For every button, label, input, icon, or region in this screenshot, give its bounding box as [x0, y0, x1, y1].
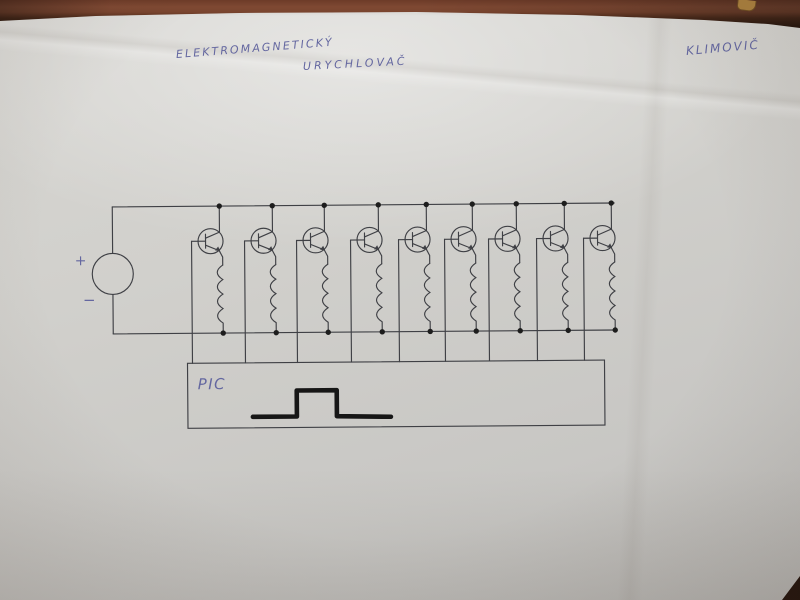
- schematic-root: + − PIC: [74, 200, 618, 429]
- bottom-supply-rail: [113, 330, 615, 334]
- top-rail-junction-6: [470, 201, 475, 206]
- coil-9: [609, 262, 615, 330]
- stage-8-base-drop: [537, 239, 538, 361]
- top-rail-junction-8: [562, 201, 567, 206]
- stage-7-base-drop: [489, 239, 490, 361]
- coil-6: [470, 263, 476, 331]
- stage-5-emitter-wire: [426, 249, 429, 263]
- stage-1-emitter-wire: [219, 251, 222, 265]
- source-minus-label: −: [83, 291, 96, 309]
- top-supply-rail: [112, 203, 614, 207]
- bottom-rail-junction-9: [613, 327, 618, 332]
- coil-2: [270, 265, 276, 333]
- transistor-9-collector: [597, 229, 611, 235]
- top-rail-junction-7: [514, 201, 519, 206]
- transistor-1-collector: [205, 232, 219, 238]
- pic-controller-box: [187, 360, 604, 428]
- top-rail-junction-5: [424, 202, 429, 207]
- coil-7: [514, 263, 520, 331]
- stage-9-base-drop: [584, 238, 585, 360]
- top-rail-junction-3: [322, 203, 327, 208]
- coil-4: [376, 264, 382, 332]
- transistor-8-collector: [550, 229, 564, 235]
- bottom-rail-junction-8: [566, 328, 571, 333]
- stage-6-base-drop: [445, 239, 446, 361]
- transistor-5-collector: [412, 230, 426, 236]
- source-plus-label: +: [75, 253, 87, 269]
- stage-2-base-drop: [245, 241, 246, 363]
- stage-3-base-drop: [297, 240, 298, 362]
- bottom-rail-junction-6: [474, 328, 479, 333]
- stage-1-base-drop: [192, 241, 193, 363]
- coil-1: [217, 265, 223, 333]
- bottom-rail-junction-3: [326, 330, 331, 335]
- coil-5: [424, 263, 430, 331]
- stage-3-emitter-wire: [324, 250, 327, 264]
- photo-of-schematic: ELEKTROMAGNETICKÝ URYCHLOVAČ KLIMOVIČ + …: [0, 0, 800, 600]
- top-rail-junction-9: [609, 200, 614, 205]
- top-rail-junction-2: [270, 203, 275, 208]
- coil-3: [322, 264, 328, 332]
- voltage-source: [92, 253, 133, 294]
- bottom-rail-junction-7: [518, 328, 523, 333]
- pulse-waveform: [253, 390, 391, 418]
- transistor-6-collector: [458, 230, 472, 236]
- bottom-rail-junction-4: [380, 329, 385, 334]
- stage-9-emitter-wire: [611, 248, 614, 262]
- transistor-4-collector: [364, 231, 378, 237]
- top-rail-junction-1: [217, 203, 222, 208]
- bottom-rail-junction-2: [274, 330, 279, 335]
- pic-label: PIC: [198, 375, 227, 393]
- stage-4-base-drop: [351, 240, 352, 362]
- stage-5-base-drop: [399, 240, 400, 362]
- schematic-labels: + − PIC: [75, 252, 227, 394]
- stage-8-emitter-wire: [564, 248, 567, 262]
- stage-6-emitter-wire: [472, 249, 475, 263]
- circuit-schematic: + − PIC: [0, 0, 800, 600]
- bottom-rail-junction-1: [221, 330, 226, 335]
- stage-4-emitter-wire: [378, 250, 381, 264]
- transistor-2-collector: [258, 232, 272, 238]
- stage-7-emitter-wire: [516, 248, 519, 262]
- transistor-7-collector: [502, 230, 516, 236]
- stage-2-emitter-wire: [272, 250, 275, 264]
- top-rail-junction-4: [376, 202, 381, 207]
- transistor-3-collector: [310, 231, 324, 237]
- coil-8: [562, 262, 568, 330]
- bottom-rail-junction-5: [428, 329, 433, 334]
